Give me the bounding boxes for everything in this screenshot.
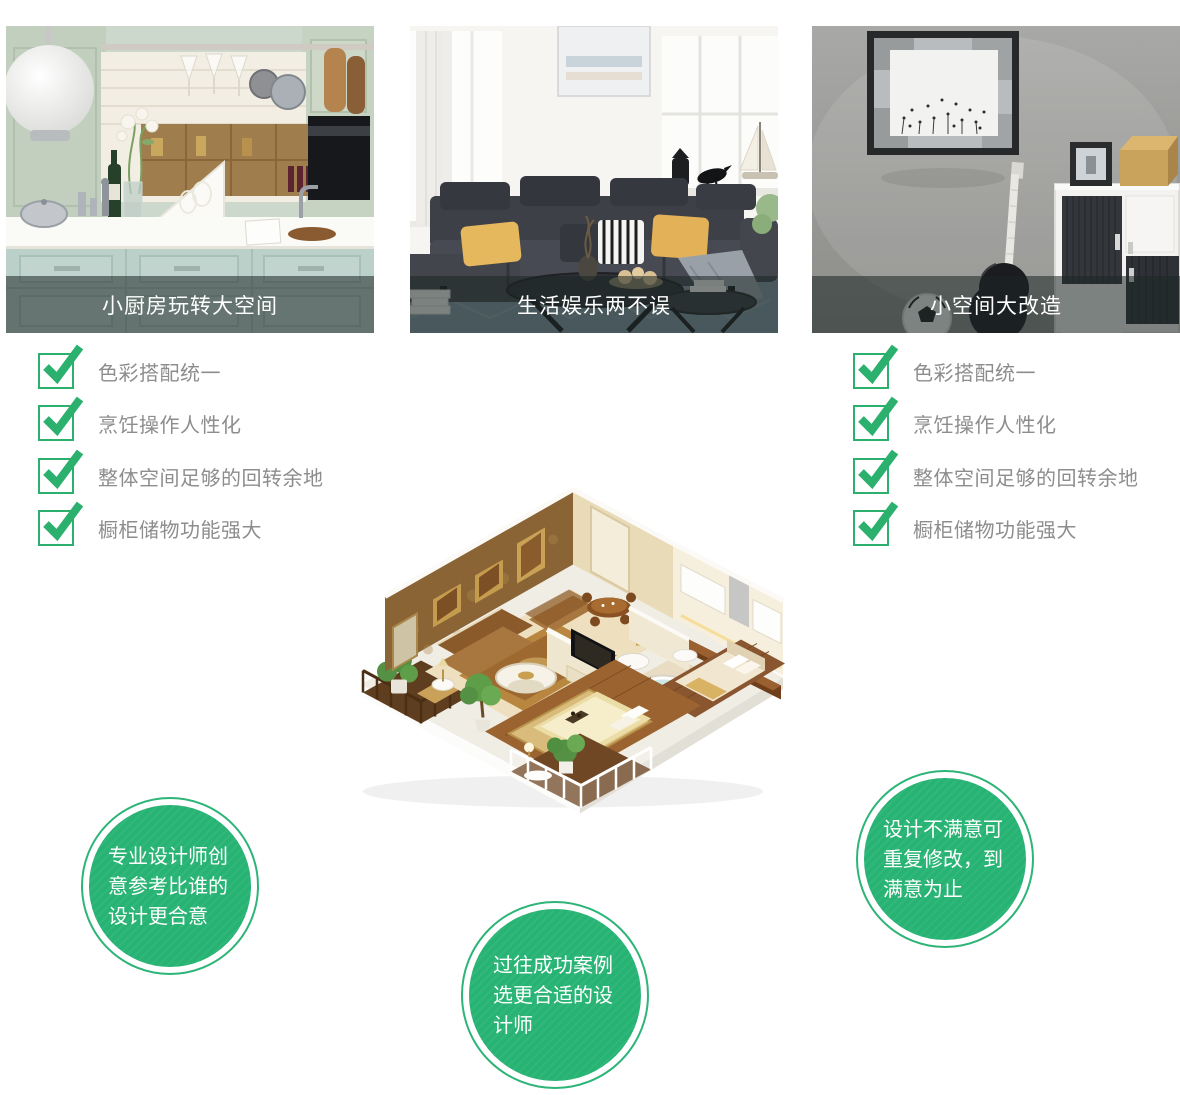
checklist-item: 橱柜储物功能强大 <box>853 509 1077 547</box>
card-caption-small-space: 小空间大改造 <box>812 276 1180 333</box>
checklist-item-label: 色彩搭配统一 <box>913 357 1036 386</box>
checklist-item: 橱柜储物功能强大 <box>38 509 262 547</box>
checklist-item: 色彩搭配统一 <box>38 352 221 390</box>
promo-section: 小厨房玩转大空间 <box>0 0 1180 1095</box>
card-caption-kitchen: 小厨房玩转大空间 <box>6 276 374 333</box>
badge-disc: 专业设计师创意参考比谁的设计更合意 <box>89 805 251 967</box>
check-icon <box>38 405 74 441</box>
check-icon <box>853 353 889 389</box>
checklist-item-label: 橱柜储物功能强大 <box>913 514 1077 543</box>
badge-text: 专业设计师创意参考比谁的设计更合意 <box>108 841 232 931</box>
checklist-item-label: 整体空间足够的回转余地 <box>913 462 1139 491</box>
checklist-item: 整体空间足够的回转余地 <box>853 457 1139 495</box>
check-icon <box>853 510 889 546</box>
check-icon <box>38 458 74 494</box>
badge-revision-guarantee: 设计不满意可重复修改，到满意为止 <box>856 770 1034 948</box>
checklist-item-label: 烹饪操作人性化 <box>913 409 1057 438</box>
checklist-item-label: 整体空间足够的回转余地 <box>98 462 324 491</box>
floorplan-3d-image <box>333 478 788 816</box>
card-caption-living-room: 生活娱乐两不误 <box>410 276 778 333</box>
checklist-item: 烹饪操作人性化 <box>853 404 1057 442</box>
badge-past-cases: 过往成功案例选更合适的设计师 <box>461 901 649 1089</box>
checklist-item: 整体空间足够的回转余地 <box>38 457 324 495</box>
badge-disc: 设计不满意可重复修改，到满意为止 <box>864 778 1026 940</box>
checklist-item-label: 色彩搭配统一 <box>98 357 221 386</box>
badge-disc: 过往成功案例选更合适的设计师 <box>469 909 641 1081</box>
checklist-item-label: 橱柜储物功能强大 <box>98 514 262 543</box>
feature-card-small-space: 小空间大改造 <box>812 26 1180 333</box>
badge-text: 过往成功案例选更合适的设计师 <box>493 950 617 1040</box>
checklist-item: 烹饪操作人性化 <box>38 404 242 442</box>
floorplan-3d-render <box>333 478 788 816</box>
check-icon <box>853 458 889 494</box>
badge-designer-creativity: 专业设计师创意参考比谁的设计更合意 <box>81 797 259 975</box>
checklist-item-label: 烹饪操作人性化 <box>98 409 242 438</box>
check-icon <box>38 510 74 546</box>
checklist-item: 色彩搭配统一 <box>853 352 1036 390</box>
badge-text: 设计不满意可重复修改，到满意为止 <box>883 814 1007 904</box>
check-icon <box>853 405 889 441</box>
feature-card-living-room: 生活娱乐两不误 <box>410 26 778 333</box>
check-icon <box>38 353 74 389</box>
feature-card-kitchen: 小厨房玩转大空间 <box>6 26 374 333</box>
